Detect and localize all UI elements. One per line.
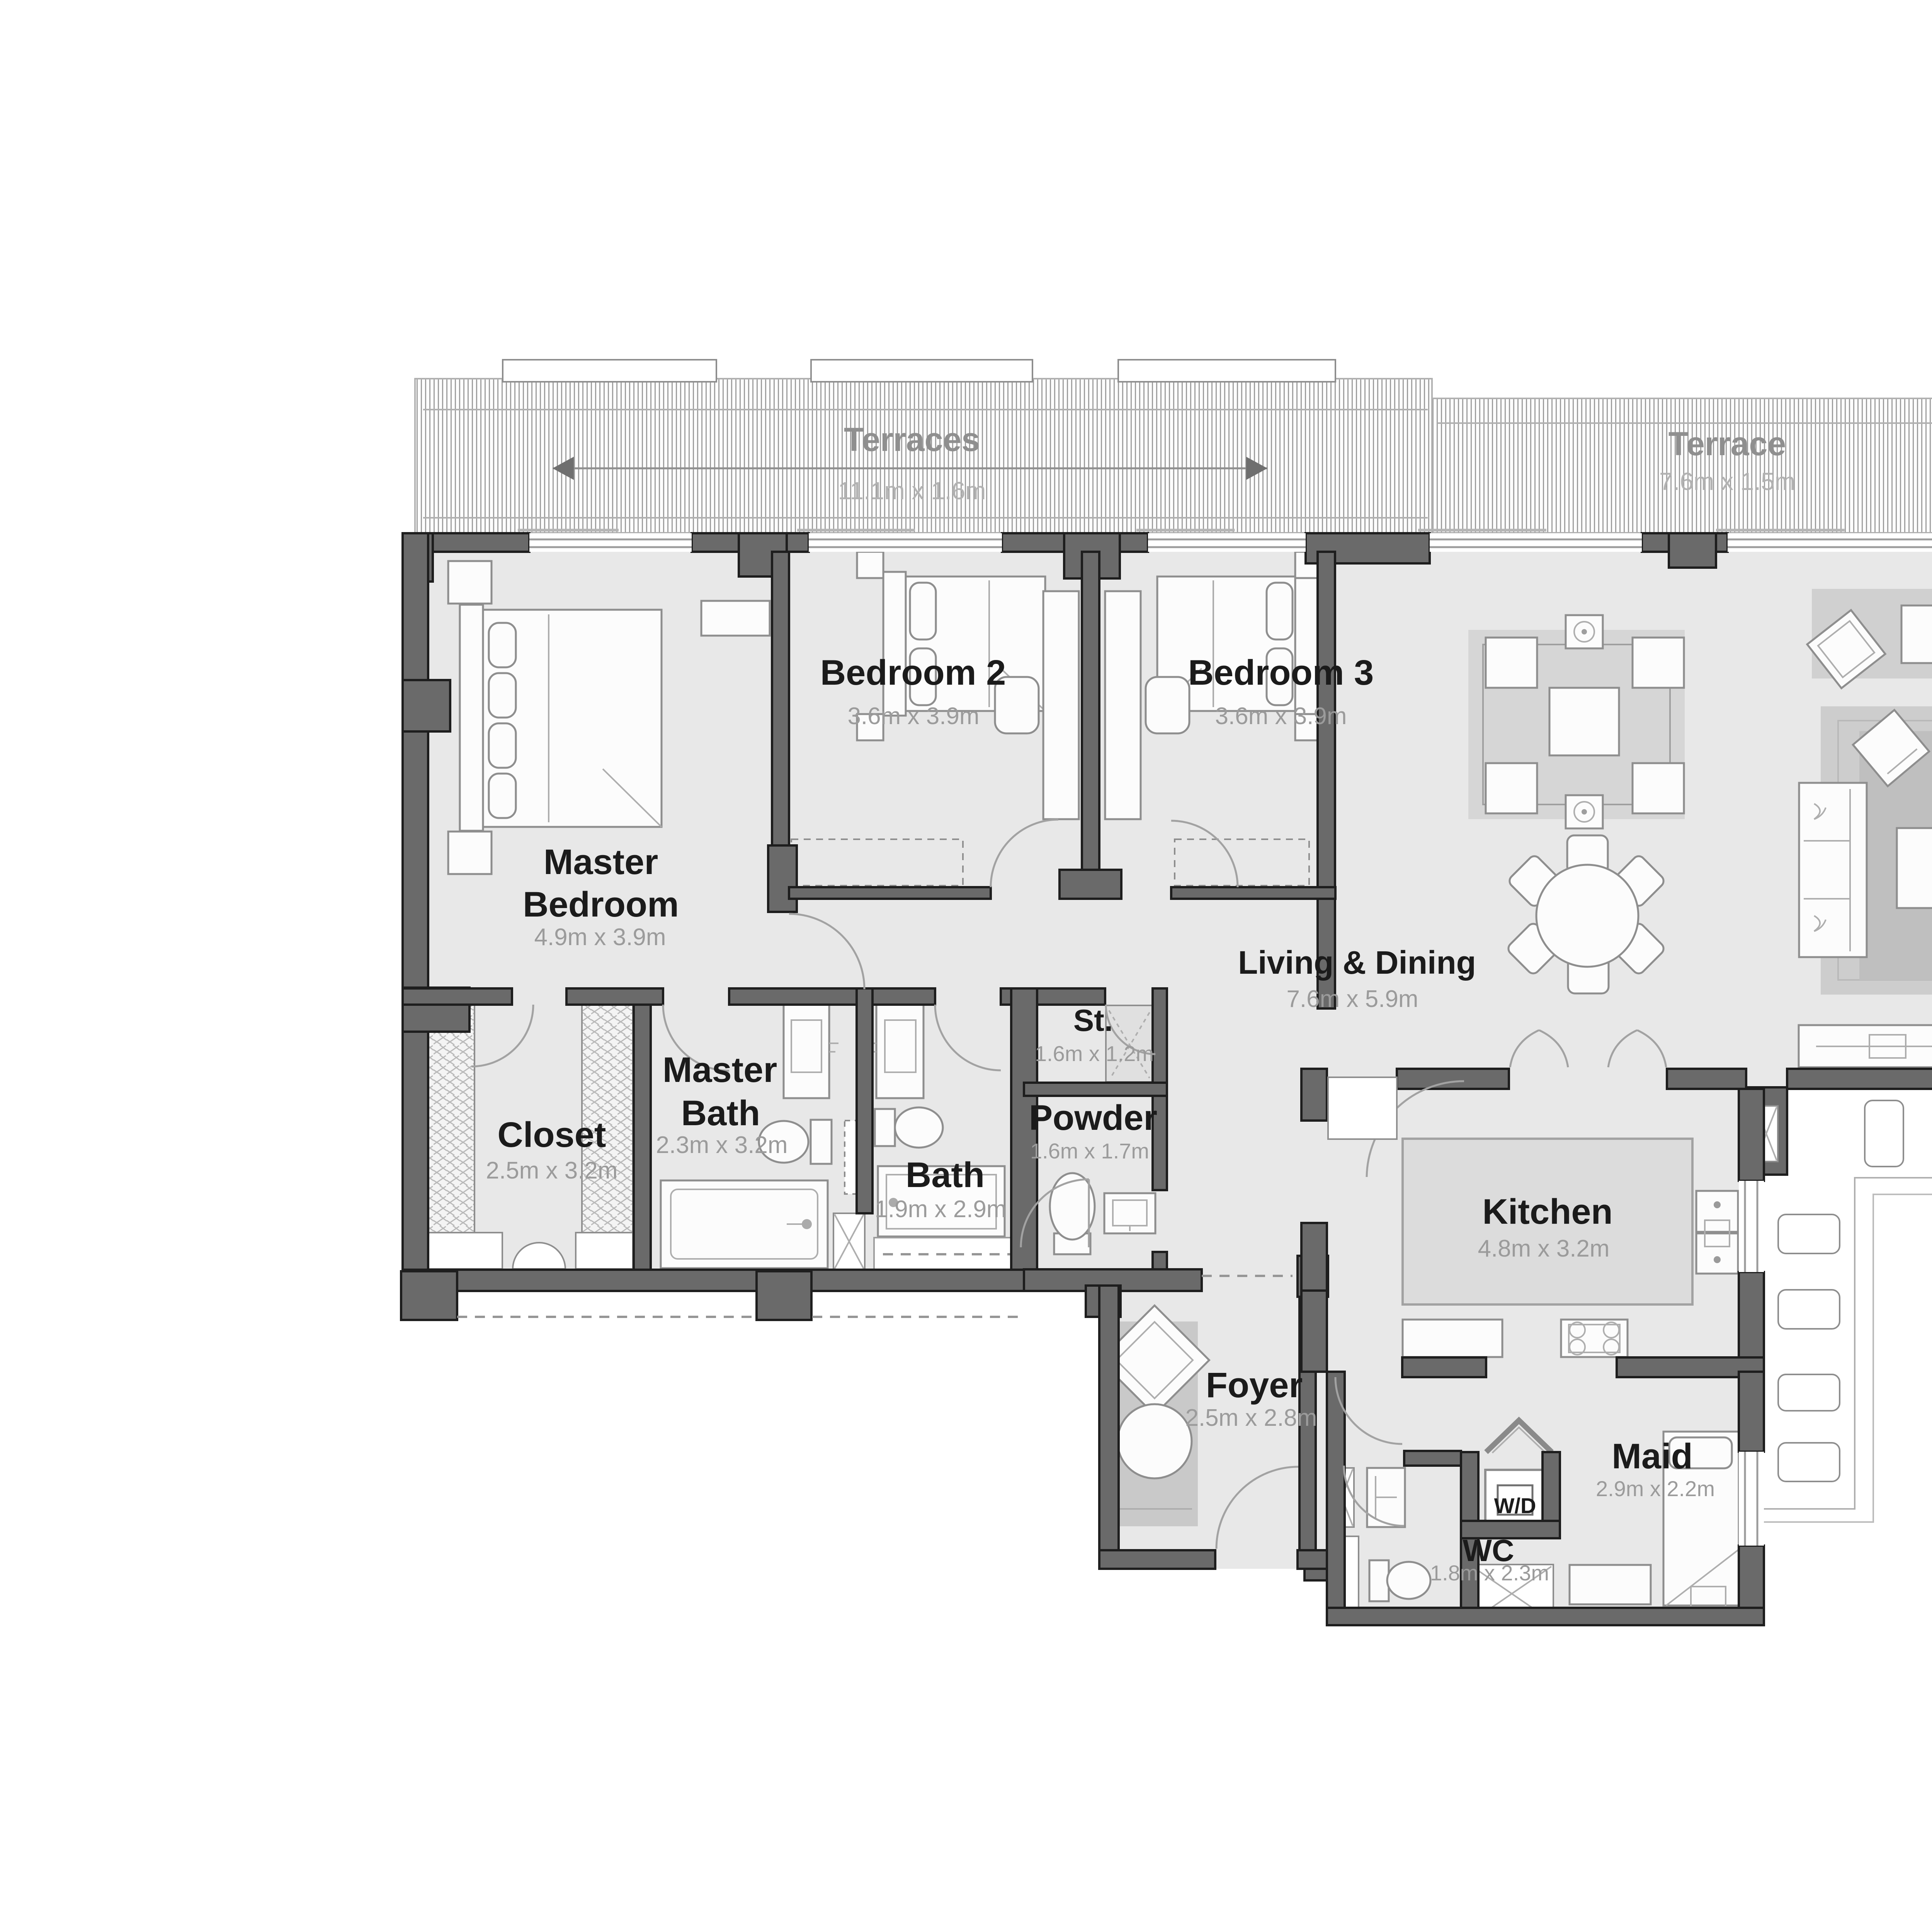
svg-text:3.6m x 3.9m: 3.6m x 3.9m — [1215, 703, 1347, 730]
svg-text:Master: Master — [663, 1050, 777, 1090]
svg-text:W/D: W/D — [1494, 1493, 1536, 1518]
svg-text:4.8m x 3.2m: 4.8m x 3.2m — [1478, 1235, 1609, 1262]
svg-text:Foyer: Foyer — [1206, 1366, 1303, 1405]
svg-text:1.9m x 2.9m: 1.9m x 2.9m — [874, 1196, 1006, 1223]
svg-text:1.8m x 2.3m: 1.8m x 2.3m — [1430, 1561, 1549, 1585]
svg-text:Bath: Bath — [681, 1094, 760, 1133]
svg-text:7.6m x 1.5m: 7.6m x 1.5m — [1659, 468, 1795, 495]
svg-text:Bedroom 3: Bedroom 3 — [1188, 653, 1374, 692]
svg-text:2.9m x 2.2m: 2.9m x 2.2m — [1596, 1476, 1715, 1501]
svg-text:Terrace: Terrace — [1668, 425, 1786, 463]
svg-text:7.6m x 5.9m: 7.6m x 5.9m — [1286, 986, 1418, 1012]
svg-text:3.6m x 3.9m: 3.6m x 3.9m — [847, 703, 979, 730]
svg-text:Living & Dining: Living & Dining — [1238, 944, 1476, 981]
svg-text:Bedroom 2: Bedroom 2 — [820, 653, 1006, 692]
svg-text:1.6m x 1.7m: 1.6m x 1.7m — [1030, 1139, 1149, 1163]
svg-text:Powder: Powder — [1029, 1098, 1157, 1138]
svg-text:St.: St. — [1073, 1003, 1113, 1037]
svg-text:1.6m x 1.2m: 1.6m x 1.2m — [1035, 1041, 1154, 1066]
svg-text:2.3m x 3.2m: 2.3m x 3.2m — [656, 1132, 787, 1158]
svg-text:Closet: Closet — [497, 1115, 606, 1155]
svg-text:2.5m x 2.8m: 2.5m x 2.8m — [1185, 1405, 1317, 1431]
svg-text:Bedroom: Bedroom — [523, 885, 679, 924]
svg-text:Master: Master — [544, 842, 658, 882]
svg-text:Terraces: Terraces — [844, 421, 980, 458]
svg-text:11.1m x 1.6m: 11.1m x 1.6m — [838, 477, 986, 505]
svg-text:Bath: Bath — [906, 1155, 985, 1195]
svg-text:Maid: Maid — [1612, 1437, 1693, 1476]
svg-text:2.5m x 3.2m: 2.5m x 3.2m — [486, 1157, 617, 1184]
svg-text:Kitchen: Kitchen — [1482, 1192, 1612, 1231]
svg-text:4.9m x 3.9m: 4.9m x 3.9m — [534, 924, 666, 951]
